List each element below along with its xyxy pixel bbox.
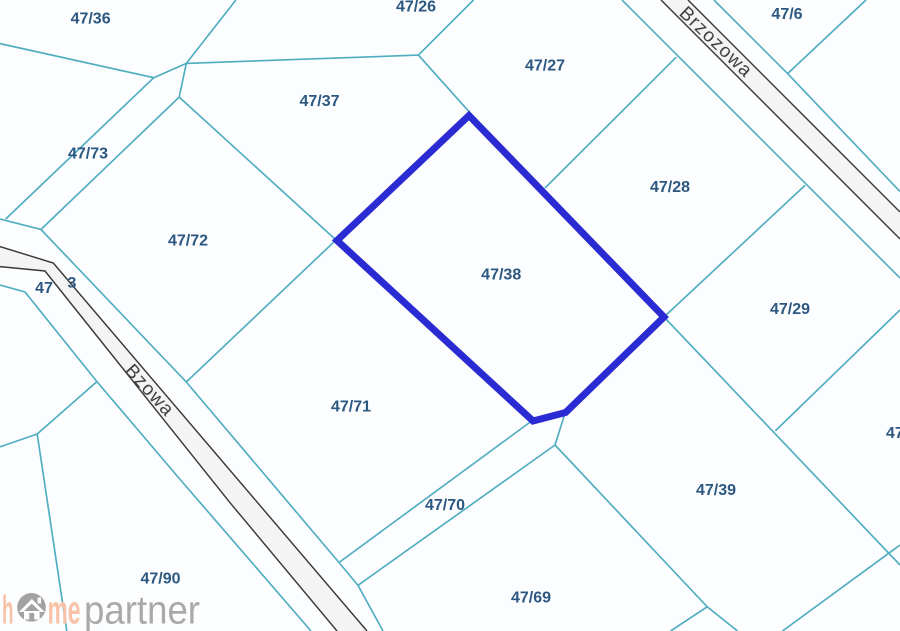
svg-text:47/28: 47/28 xyxy=(650,179,690,196)
svg-text:47/29: 47/29 xyxy=(770,301,810,318)
svg-text:47/38: 47/38 xyxy=(481,266,521,283)
svg-text:47/36: 47/36 xyxy=(71,11,111,28)
svg-text:47/39: 47/39 xyxy=(696,482,736,499)
svg-text:47/26: 47/26 xyxy=(396,0,436,16)
svg-text:47/72: 47/72 xyxy=(168,233,208,250)
svg-text:47: 47 xyxy=(35,280,53,297)
svg-text:h: h xyxy=(2,589,14,631)
svg-text:partner: partner xyxy=(84,589,200,631)
svg-text:47/6: 47/6 xyxy=(771,6,802,23)
svg-text:47/70: 47/70 xyxy=(425,497,465,514)
svg-text:47/37: 47/37 xyxy=(299,93,339,110)
svg-text:47/71: 47/71 xyxy=(331,398,371,415)
svg-text:47/90: 47/90 xyxy=(140,570,180,587)
svg-text:47/69: 47/69 xyxy=(511,589,551,606)
svg-text:me: me xyxy=(48,589,81,631)
svg-text:47/27: 47/27 xyxy=(525,57,565,74)
svg-text:47/74: 47/74 xyxy=(886,425,900,442)
svg-text:47/73: 47/73 xyxy=(68,145,108,162)
